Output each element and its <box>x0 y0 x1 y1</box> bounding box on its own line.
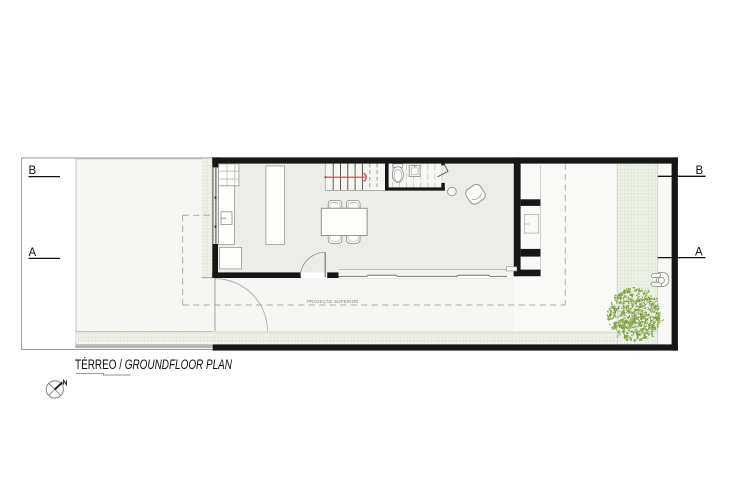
svg-text:B: B <box>29 165 37 177</box>
svg-text:A: A <box>695 246 703 258</box>
svg-text:A: A <box>29 247 37 259</box>
svg-text:B: B <box>696 165 704 177</box>
svg-text:TÉRREO / GROUNDFLOOR PLAN: TÉRREO / GROUNDFLOOR PLAN <box>75 357 232 372</box>
svg-text:PROJEÇÃO SUPERIOR: PROJEÇÃO SUPERIOR <box>307 299 359 304</box>
